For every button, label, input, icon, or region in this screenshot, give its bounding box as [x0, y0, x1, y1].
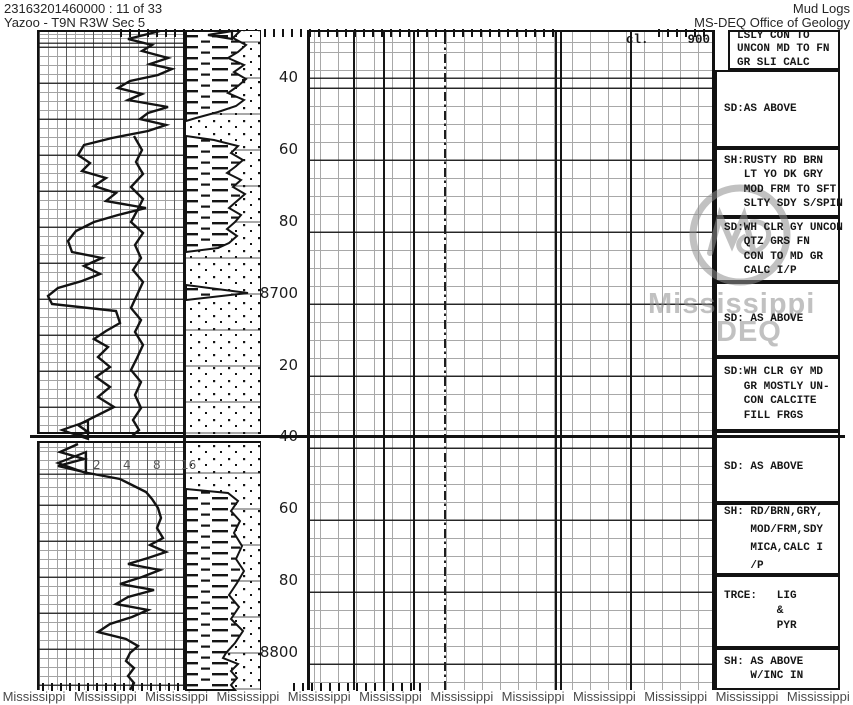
grid-heavy-line	[413, 30, 415, 690]
watermark-mississippi-bottom: Mississippi	[782, 689, 853, 704]
description-box: SD:WH CLR GY MD GR MOSTLY UN- CON CALCIT…	[715, 357, 840, 431]
header-left: 23163201460000 : 11 of 33 Yazoo - T9N R3…	[4, 2, 162, 30]
chloride-value: 900	[687, 33, 710, 47]
description-box: SD: AS ABOVE	[715, 431, 840, 503]
description-text: SD:WH CLR GY MD GR MOSTLY UN- CON CALCIT…	[717, 365, 830, 423]
grid-heavy-line	[383, 30, 385, 690]
rate-scale-number: 2	[93, 458, 101, 472]
depth-label: 8700	[256, 285, 298, 302]
description-text: SD:WH CLR GY UNCON QTZ GRS FN CON TO MD …	[717, 221, 843, 279]
depth-label: 80	[256, 572, 298, 589]
description-text: SH: AS ABOVE W/INC IN	[717, 655, 803, 684]
description-box: SD:AS ABOVE	[715, 70, 840, 148]
document-id: 23163201460000 : 11 of 33	[4, 2, 162, 16]
page-title: Mud Logs	[694, 2, 850, 16]
center-graph-grid	[307, 30, 715, 690]
watermark-mississippi-bottom: Mississippi	[212, 689, 284, 704]
well-location: Yazoo - T9N R3W Sec 5	[4, 16, 162, 30]
top-ruler-ticks	[120, 29, 555, 37]
watermark-mississippi-bottom: Mississippi	[0, 689, 70, 704]
grid-heavy-line	[560, 30, 562, 690]
watermark-mississippi-bottom: Mississippi	[283, 689, 355, 704]
left-log-track-lower	[37, 441, 261, 690]
rate-scale-number: 8	[153, 458, 161, 472]
watermark-mississippi-bottom: Mississippi	[141, 689, 213, 704]
description-text: SH: RD/BRN,GRY, MOD/FRM,SDY MICA,CALC I …	[717, 503, 823, 575]
depth-label: 60	[256, 141, 298, 158]
chloride-label: cl.	[626, 33, 649, 47]
description-text: SD:AS ABOVE	[717, 102, 797, 117]
mud-log-scan-page: { "header": { "doc_id": "23163201460000 …	[0, 0, 853, 705]
watermark-mississippi-bottom: Mississippi	[640, 689, 712, 704]
lithology-column-divider	[183, 30, 186, 690]
depth-label: 80	[256, 213, 298, 230]
rate-scale-number: 16	[181, 458, 196, 472]
watermark-mississippi-bottom: Mississippi	[355, 689, 427, 704]
agency-name: MS-DEQ Office of Geology	[694, 16, 850, 30]
watermark-mississippi-bottom: Mississippi	[426, 689, 498, 704]
depth-label: 8800	[256, 644, 298, 661]
grid-heavy-line	[353, 30, 355, 690]
description-box: SH:RUSTY RD BRN LT YO DK GRY MOD FRM TO …	[715, 148, 840, 217]
depth-label: 40	[256, 69, 298, 86]
left-log-track-upper	[37, 30, 261, 434]
description-text: LSLY CON TO UNCON MD TO FN GR SLI CALC	[730, 30, 829, 71]
description-text: SD: AS ABOVE	[717, 312, 803, 327]
grid-dashdot-line	[444, 30, 446, 690]
rate-scale-number: 4	[123, 458, 131, 472]
chloride-annotation: cl. 900	[626, 33, 710, 47]
watermark-mississippi-bottom: Mississippi	[69, 689, 141, 704]
grid-heavy-line	[630, 30, 632, 690]
watermark-mississippi-bottom: Mississippi	[568, 689, 640, 704]
description-box: SH: RD/BRN,GRY, MOD/FRM,SDY MICA,CALC I …	[715, 503, 840, 575]
header-right: Mud Logs MS-DEQ Office of Geology	[694, 2, 850, 30]
description-text: TRCE: LIG & PYR	[717, 589, 797, 634]
watermark-mississippi-bottom: Mississippi	[711, 689, 783, 704]
depth-label: 20	[256, 357, 298, 374]
description-box: TRCE: LIG & PYR	[715, 575, 840, 648]
grid-heavy-line	[555, 30, 557, 690]
description-box: SH: AS ABOVE W/INC IN	[715, 648, 840, 690]
description-text: SD: AS ABOVE	[717, 460, 803, 475]
description-box: SD:WH CLR GY UNCON QTZ GRS FN CON TO MD …	[715, 217, 840, 282]
watermark-mississippi-bottom: Mississippi	[497, 689, 569, 704]
description-text: SH:RUSTY RD BRN LT YO DK GRY MOD FRM TO …	[717, 154, 843, 212]
description-box: LSLY CON TO UNCON MD TO FN GR SLI CALC	[728, 30, 840, 70]
depth-label: 60	[256, 500, 298, 517]
